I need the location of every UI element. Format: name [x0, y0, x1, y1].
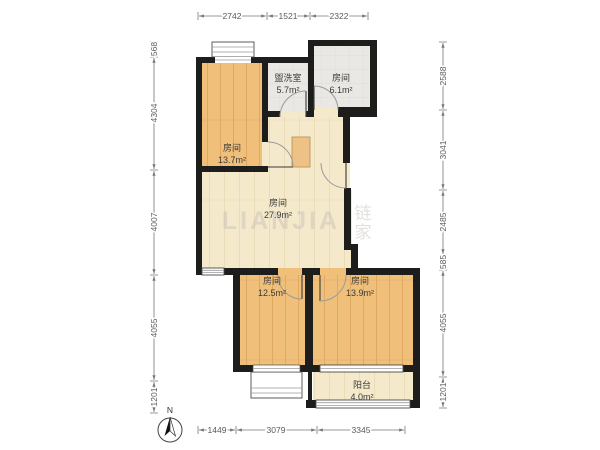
room-area: 13.9m²: [346, 288, 374, 298]
room-label: 房间: [269, 197, 287, 208]
bay-window-top: [212, 42, 254, 63]
room-area: 13.7m²: [218, 155, 246, 165]
room-label: 盥洗室: [274, 72, 301, 83]
room-area: 5.7m²: [276, 85, 299, 95]
dim-bottom: 3079: [267, 425, 286, 435]
dim-top: 1521: [279, 11, 298, 21]
dim-right: 1201: [438, 382, 448, 401]
dim-top: 2742: [223, 11, 242, 21]
room-area: 12.5m²: [258, 288, 286, 298]
door-threshold: [278, 268, 302, 275]
room-label: 房间: [223, 142, 241, 153]
dim-bottom: 3345: [352, 425, 371, 435]
dim-left: 4007: [149, 212, 159, 231]
door-threshold: [320, 268, 346, 275]
dim-right: 3041: [438, 140, 448, 159]
dim-left: 4055: [149, 318, 159, 337]
door-threshold: [314, 107, 338, 117]
compass: N: [158, 405, 182, 442]
dim-bottom: 1449: [208, 425, 227, 435]
floorplan-page: LIANJIA 链 家: [0, 0, 600, 450]
watermark-logo-char: 家: [355, 223, 372, 242]
balcony-door-window: [320, 365, 403, 372]
room-label: 阳台: [353, 379, 371, 390]
room-label: 房间: [351, 275, 369, 286]
dim-right: 585: [438, 255, 448, 269]
compass-north-label: N: [167, 405, 173, 415]
room-area: 4.0m²: [350, 392, 373, 402]
dim-left: 1201: [149, 387, 159, 406]
dim-right: 4055: [438, 313, 448, 332]
room-label: 房间: [332, 72, 350, 83]
floorplan-drawing: LIANJIA 链 家: [0, 0, 600, 450]
door-threshold: [262, 142, 268, 167]
cabinet: [292, 137, 310, 167]
room-label: 房间: [263, 275, 281, 286]
dim-top: 2322: [330, 11, 349, 21]
dim-left: 4304: [149, 103, 159, 122]
dim-right: 2485: [438, 212, 448, 231]
bay-window-bottom: [251, 365, 302, 398]
dim-right: 2588: [438, 66, 448, 85]
room-area: 27.9m²: [264, 210, 292, 220]
window-left: [202, 268, 224, 275]
watermark-logo-char: 链: [355, 204, 372, 223]
dim-left: 568: [149, 42, 159, 56]
room-area: 6.1m²: [329, 85, 352, 95]
door-threshold: [280, 111, 306, 117]
